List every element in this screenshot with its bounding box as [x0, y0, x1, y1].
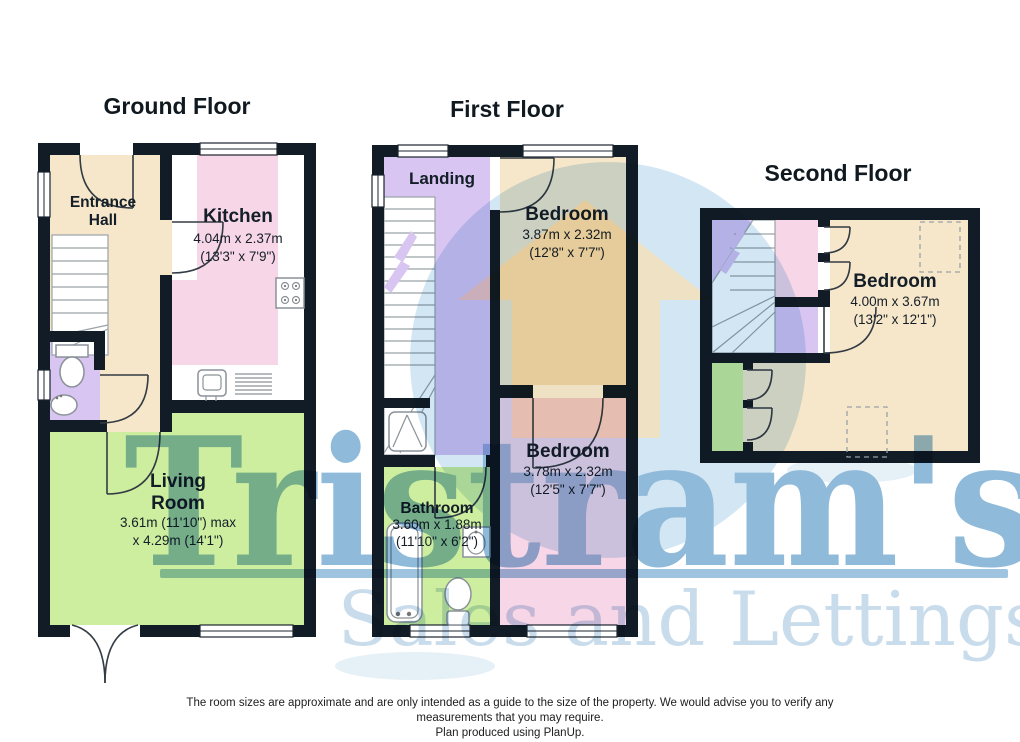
first-floor-plan: Landing Bedroom 3.87m x 2.32m (12'8" x 7…: [365, 135, 650, 665]
room-bedroom-top: [830, 220, 968, 451]
bedroom-back-imperial: (12'5" x 7'7"): [530, 482, 606, 497]
room-living-ext: [172, 413, 304, 432]
bedroom-top-metric: 4.00m x 3.67m: [850, 294, 939, 309]
french-door-left: [72, 625, 105, 683]
toilet-bowl: [445, 578, 471, 610]
bathroom-metric: 3.60m x 1.88m: [392, 517, 481, 532]
wc-basin: [51, 395, 77, 415]
room-landing-ext: [430, 408, 490, 455]
disclaimer-line2: measurements that you may require.: [0, 711, 1020, 726]
room-bedroom-top-ext: [743, 363, 830, 451]
bedroom-front-imperial: (12'8" x 7'7"): [529, 245, 605, 260]
room-landing2-ext: [775, 302, 818, 353]
disclaimer-line3: Plan produced using PlanUp.: [0, 726, 1020, 741]
living-room-label: Living: [150, 471, 206, 492]
entrance-hall-label: Entrance: [70, 194, 137, 211]
bathroom-label: Bathroom: [400, 500, 473, 517]
bedroom-top-label: Bedroom: [853, 271, 936, 292]
floorplan-page: Ground Floor First Floor Second Floor: [0, 0, 1020, 742]
living-room-label2: Room: [151, 493, 205, 514]
bedroom-back-label: Bedroom: [526, 441, 609, 462]
bedroom-top-imperial: (13'2" x 12'1"): [853, 312, 936, 327]
room-cupboard: [775, 220, 818, 297]
bathroom-imperial: (11'10" x 6'2"): [396, 534, 478, 549]
kitchen-dims-imperial: (13'3" x 7'9"): [200, 249, 276, 264]
landing-label: Landing: [409, 169, 475, 188]
room-eaves: [712, 363, 743, 451]
disclaimer-line1: The room sizes are approximate and are o…: [0, 696, 1020, 711]
living-dims-metric: 3.61m (11'10") max: [120, 515, 236, 530]
toilet-cistern: [56, 345, 88, 357]
toilet-pedestal: [447, 611, 469, 625]
living-dims-imperial: x 4.29m (14'1"): [133, 533, 224, 548]
disclaimer: The room sizes are approximate and are o…: [0, 696, 1020, 741]
cylinder-cupboard: [389, 412, 426, 451]
hob: [276, 278, 304, 308]
bedroom-back-metric: 3.78m x 2.32m: [523, 464, 612, 479]
second-floor-plan: Bedroom 4.00m x 3.67m (13'2" x 12'1"): [690, 150, 1000, 480]
kitchen-sink: [198, 370, 226, 396]
ground-floor-plan: Entrance Hall Kitchen 4.04m x 2.37m (13'…: [30, 85, 322, 685]
room-bedroom-back: [500, 398, 626, 625]
room-bedroom-front: [500, 157, 626, 385]
bedroom-front-label: Bedroom: [525, 204, 608, 225]
toilet-bowl: [60, 357, 84, 387]
entrance-hall-label2: Hall: [89, 212, 117, 229]
kitchen-dims-metric: 4.04m x 2.37m: [193, 231, 282, 246]
first-floor-title: First Floor: [407, 96, 607, 123]
kitchen-label: Kitchen: [203, 206, 273, 227]
french-door-right: [105, 625, 138, 683]
bedroom-front-metric: 3.87m x 2.32m: [522, 227, 611, 242]
